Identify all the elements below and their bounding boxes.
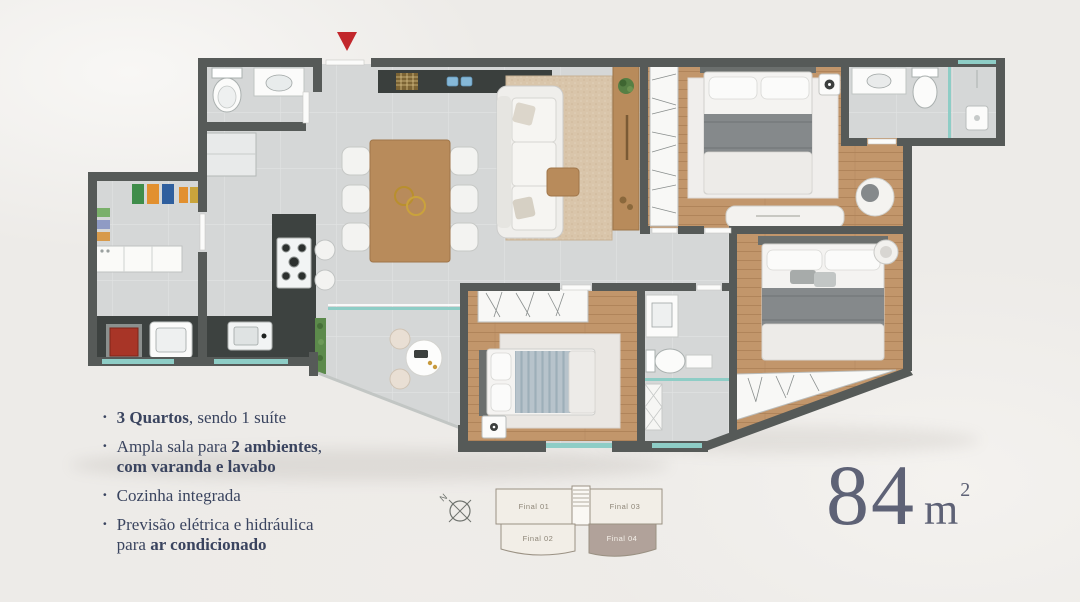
toilet-icon [646,349,685,373]
key-label-final01: Final 01 [519,502,550,511]
balcony-chair [390,369,410,389]
laundry-sink [150,322,192,358]
kitchen-sink [228,322,272,350]
key-label-final02: Final 02 [523,534,554,543]
feature-text: Ampla sala para 2 ambientes,com varanda … [117,437,322,477]
feature-item-quartos: · 3 Quartos, sendo 1 suíte [102,408,382,428]
side-table [874,240,898,264]
plant-icon [618,78,634,94]
feature-item-sala: · Ampla sala para 2 ambientes,com varand… [102,437,382,477]
suite-bath-door [868,139,896,144]
pillow [767,250,822,270]
blue-glassware [447,77,458,86]
bedroom3-door [562,285,591,290]
pillow [491,384,511,411]
balcony-chair [390,329,410,349]
stool [315,270,335,290]
nightstand [482,416,506,438]
bullet: · [102,485,108,505]
lavabo-door [303,92,309,123]
key-label-final03: Final 03 [610,502,641,511]
pillow [825,250,880,270]
suite-bed [700,64,816,194]
balcony-table [406,340,442,376]
area-label: 84m2 [826,452,971,538]
duvet [704,152,812,194]
duvet-fold [569,351,595,413]
key-core [572,486,590,525]
bedroom2-door [705,228,731,233]
key-plan: N Final 01 Final 03 Final 02 Final 04 [438,486,662,556]
feature-text: Cozinha integrada [117,486,241,506]
compass [449,500,471,522]
shower-bench [645,384,662,430]
feature-text: 3 Quartos, sendo 1 suíte [117,408,287,428]
striped-duvet [515,351,571,413]
suite-closet [650,66,678,226]
area-number: 84 [826,447,916,543]
duvet [762,324,884,360]
shower-glass [645,378,729,381]
entrance-door [326,60,364,65]
key-label-final04: Final 04 [607,534,638,543]
bullet: · [102,514,108,554]
bedroom2-closet [736,370,896,420]
stool [315,240,335,260]
feature-text: Previsão elétrica e hidráulicapara ar co… [117,515,314,555]
compass-label: N [438,491,450,503]
pillow [709,77,757,99]
cooktop [277,238,311,288]
entrance-marker-icon [337,32,357,51]
bath-sink [646,295,678,337]
feature-list: · 3 Quartos, sendo 1 suíte · Ampla sala … [102,408,382,564]
toilet-tank [212,68,242,78]
bath-sink [852,68,906,94]
washing-machine [94,246,182,272]
blue-glassware [461,77,472,86]
pillow [761,77,809,99]
suite-desk [726,206,844,228]
ottoman [547,168,579,196]
accent-pillow [790,270,816,284]
bed3 [479,349,595,416]
armchair [856,178,894,216]
blanket [704,114,812,156]
bathroom-door [697,285,721,290]
feature-item-ar: · Previsão elétrica e hidráulicapara ar … [102,515,382,555]
dining-table [370,140,450,262]
feature-item-cozinha: · Cozinha integrada [102,486,382,506]
bedroom3-closet [478,289,588,322]
toilet-icon [912,68,938,108]
shower-glass [948,67,951,138]
tv-panel [613,64,639,230]
service-door [200,214,205,250]
speaker [819,74,840,95]
suite-door [652,228,677,233]
accent-pillow [814,272,836,287]
vase-icon [627,204,633,210]
area-unit: m2 [924,485,971,534]
key-plan-building [496,486,662,556]
bullet: · [102,407,108,427]
bullet: · [102,436,108,476]
vase-icon [620,197,627,204]
sliding-door-glass [328,307,462,310]
floorplan-marketing-page: N Final 01 Final 03 Final 02 Final 04 · … [0,0,1080,602]
blanket [762,288,884,328]
sofa [497,86,563,238]
shelf [686,355,712,368]
pillow [491,353,511,380]
lavabo-sink [254,68,304,96]
laundry-basket [110,328,138,356]
bed2 [758,236,888,360]
